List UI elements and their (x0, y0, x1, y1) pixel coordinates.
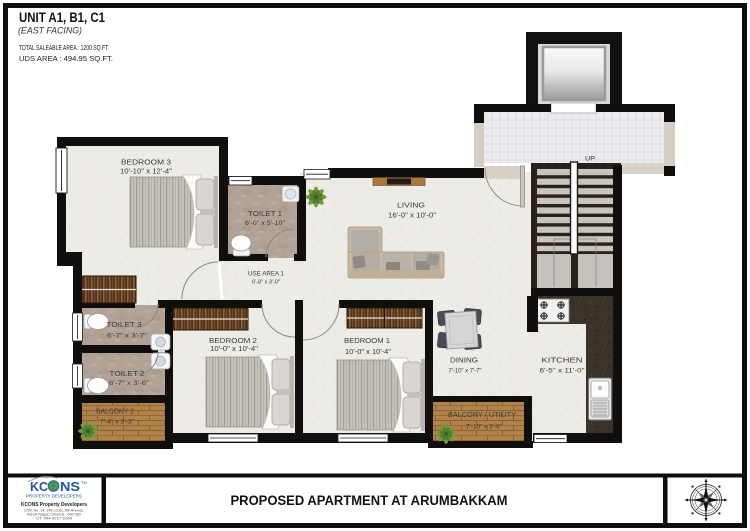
svg-text:KITCHEN: KITCHEN (542, 358, 583, 365)
svg-text:BEDROOM 3: BEDROOM 3 (121, 158, 171, 167)
svg-text:10'-0" x 10'-4": 10'-0" x 10'-4" (345, 349, 392, 356)
svg-text:DINING: DINING (450, 358, 478, 365)
svg-text:PROPOSED APARTMENT AT ARUMBA: PROPOSED APARTMENT AT ARUMBAKKAM (231, 493, 508, 508)
svg-text:7'-10" x 7'-7": 7'-10" x 7'-7" (449, 368, 483, 375)
svg-text:NS: NS (60, 479, 80, 494)
svg-text:BALCONY / UTILITY: BALCONY / UTILITY (448, 412, 516, 419)
svg-text:UDS AREA : 494.95 SQ.FT.: UDS AREA : 494.95 SQ.FT. (19, 54, 113, 63)
svg-text:10'-0" x 10'-4": 10'-0" x 10'-4" (210, 346, 259, 353)
svg-text:16'-0" x 10'-0": 16'-0" x 10'-0" (388, 213, 437, 220)
svg-text:6'-7" x 3'-7": 6'-7" x 3'-7" (107, 333, 148, 340)
svg-text:LIVING: LIVING (397, 201, 425, 210)
svg-text:7'-4" x 3'-3": 7'-4" x 3'-3" (100, 419, 135, 426)
svg-text:7'-10" x 3'-6": 7'-10" x 3'-6" (466, 424, 503, 431)
svg-text:UP: UP (585, 156, 595, 163)
svg-text:6'-0" x 5'-10": 6'-0" x 5'-10" (245, 220, 286, 227)
svg-text:6'-5" x 11'-0": 6'-5" x 11'-0" (540, 368, 586, 375)
svg-text:KCONS Property Developers: KCONS Property Developers (21, 502, 87, 508)
svg-text:KC: KC (30, 479, 49, 494)
svg-text:PROPERTY DEVELOPERS: PROPERTY DEVELOPERS (26, 494, 82, 499)
svg-text:CT: 044 4217 6164: CT: 044 4217 6164 (36, 517, 72, 521)
svg-text:6'-8" x 3'-0": 6'-8" x 3'-0" (252, 280, 280, 286)
svg-text:TM: TM (81, 480, 87, 485)
svg-text:10'-10" x 12'-4": 10'-10" x 12'-4" (120, 169, 173, 176)
svg-text:USE AREA 1: USE AREA 1 (248, 272, 285, 278)
svg-text:BEDROOM 2: BEDROOM 2 (209, 336, 257, 345)
svg-text:TOILET 1: TOILET 1 (248, 211, 282, 218)
svg-text:(EAST FACING): (EAST FACING) (18, 26, 82, 36)
svg-text:TOILET 3: TOILET 3 (107, 322, 142, 329)
svg-text:TOILET 2: TOILET 2 (110, 371, 145, 378)
svg-text:UNIT A1, B1, C1: UNIT A1, B1, C1 (19, 10, 105, 25)
svg-text:TOTAL SALEABLE AREA : 1200 S: TOTAL SALEABLE AREA : 1200 SQ.FT. (19, 43, 109, 52)
svg-text:BALCONY 2: BALCONY 2 (96, 409, 134, 416)
svg-text:6'-7" x 3'-6": 6'-7" x 3'-6" (109, 380, 150, 387)
svg-text:BEDROOM 1: BEDROOM 1 (344, 336, 390, 345)
